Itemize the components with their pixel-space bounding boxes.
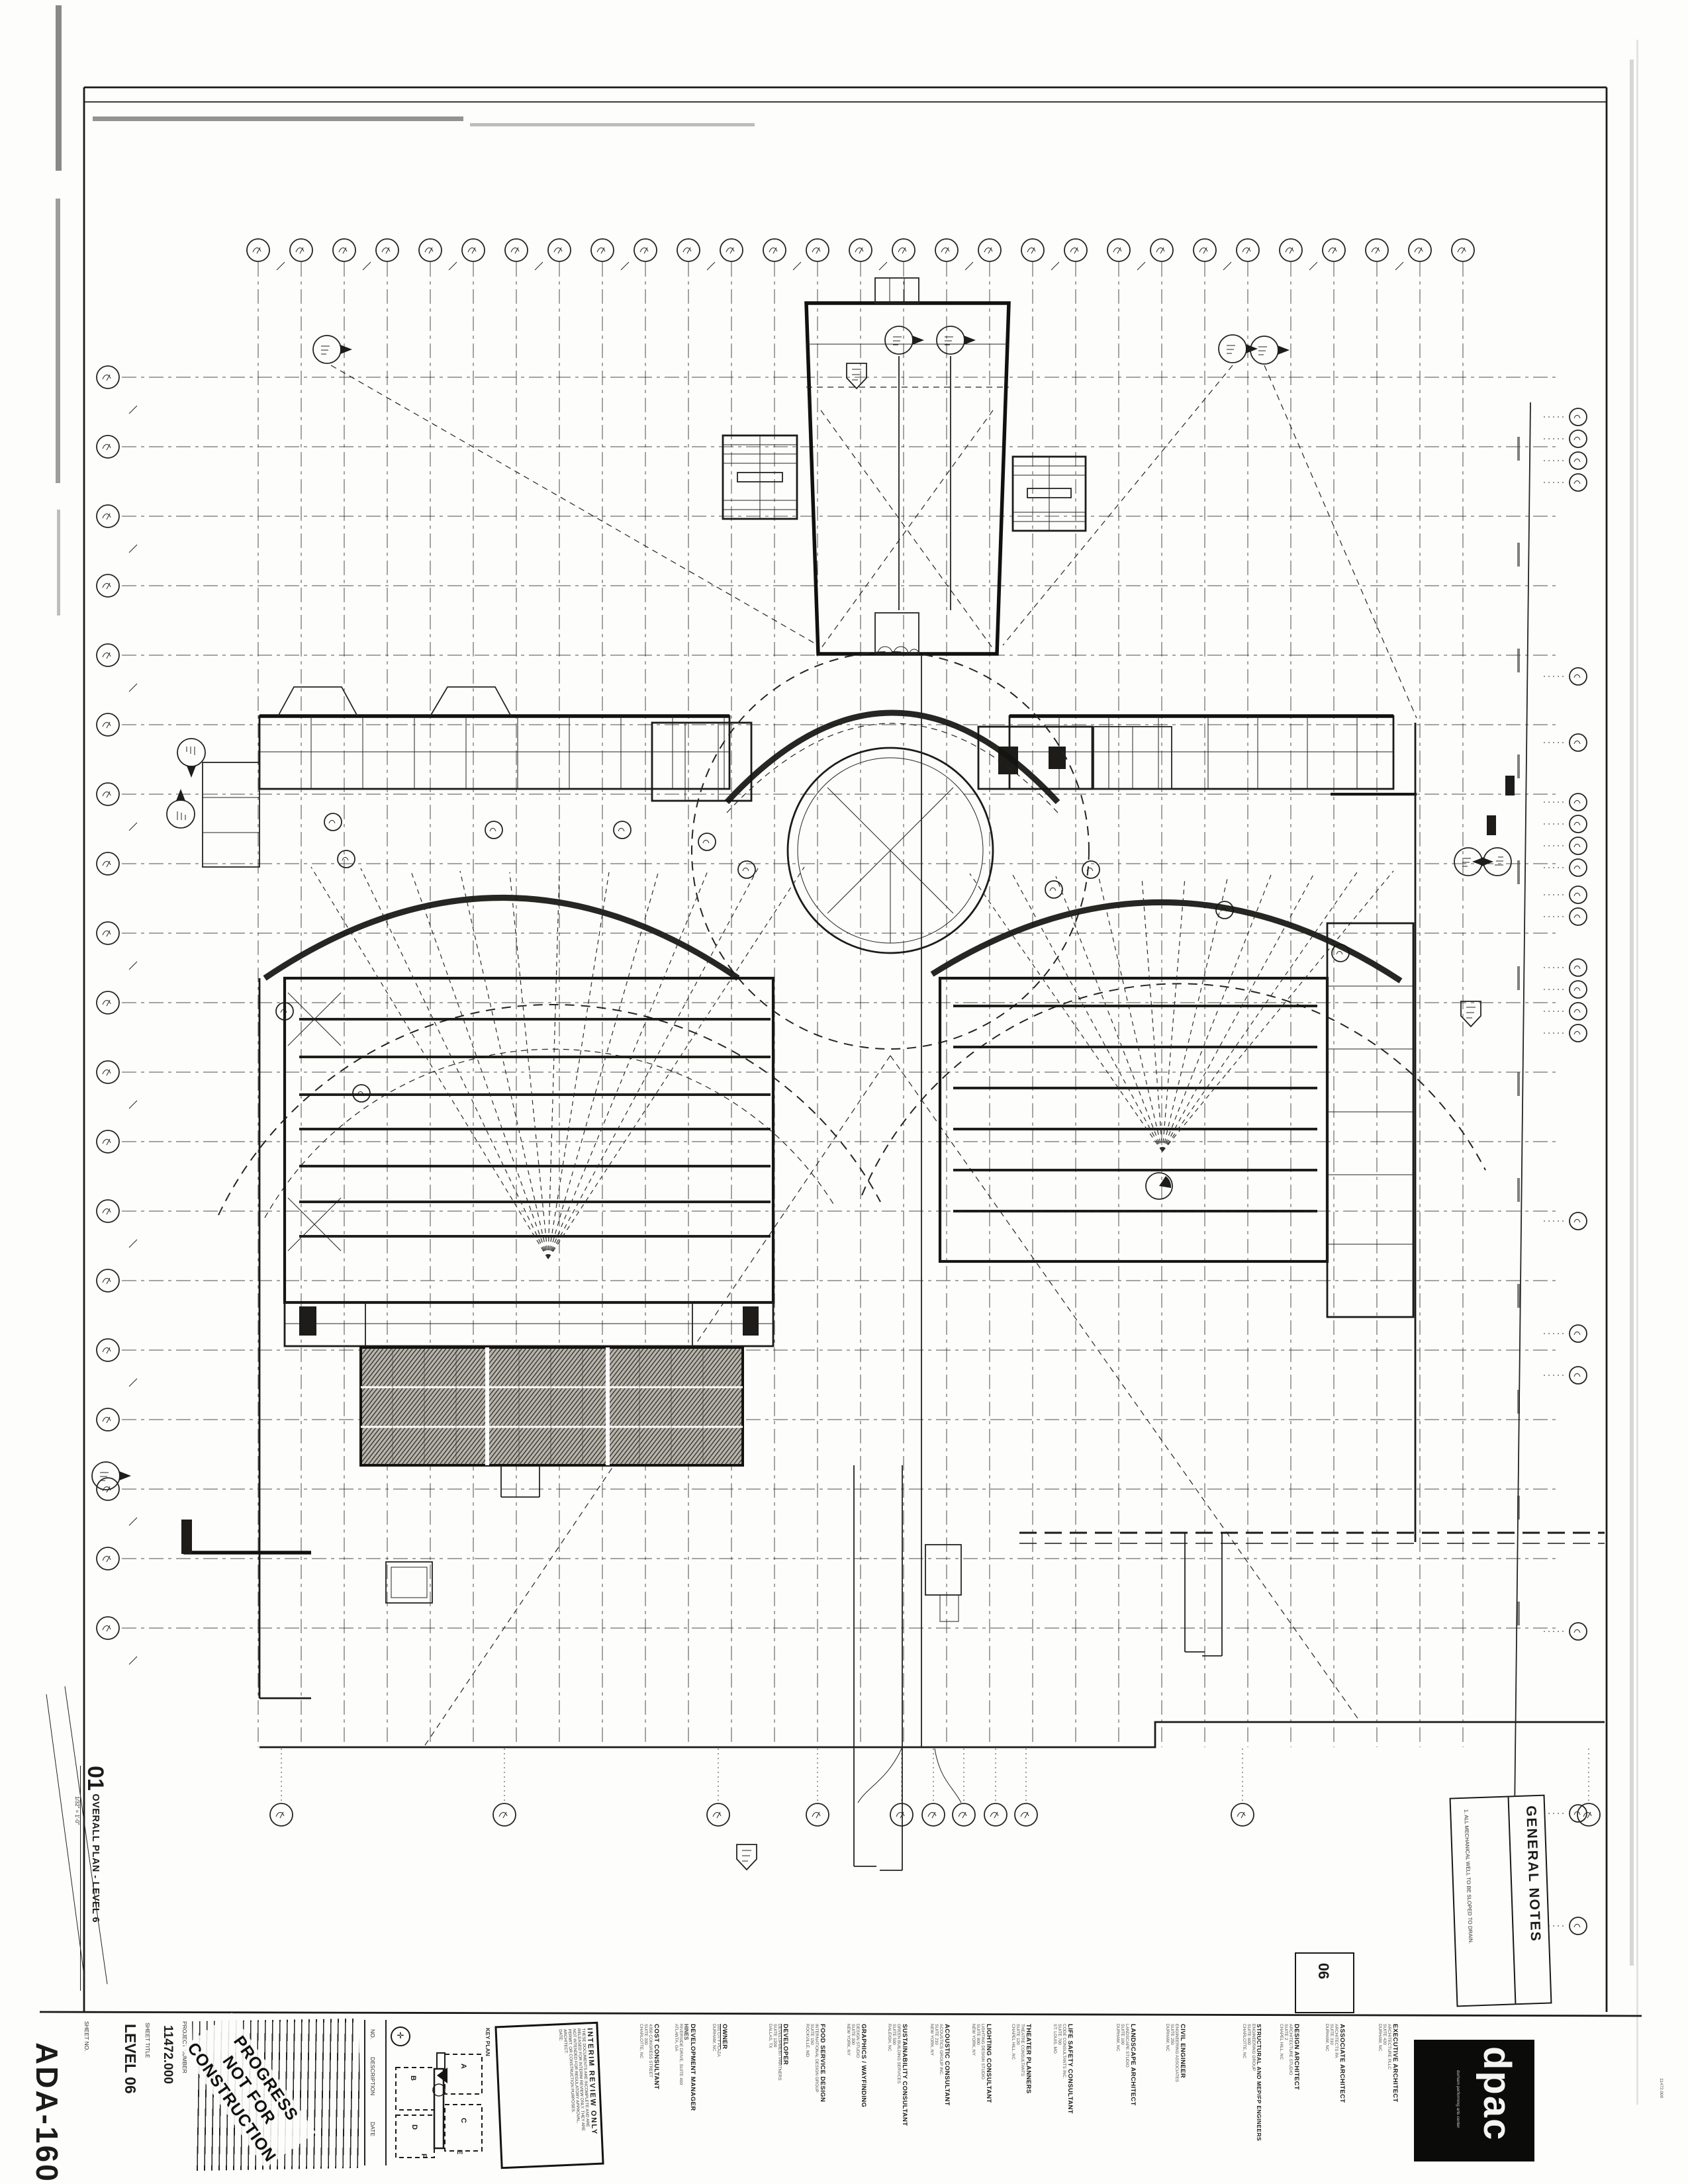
revision-hatch-area: PROGRESS NOT FOR CONSTRUCTION	[192, 2019, 361, 2171]
consultant-role: GRAPHICS / WAYFINDING	[860, 2024, 867, 2181]
drawing-title-line: 01 OVERALL PLAN - LEVEL 6	[80, 1766, 108, 1991]
key-plan-area-c: C	[459, 2118, 467, 2123]
consultant-line: CHARLOTTE, NC	[639, 2024, 643, 2181]
key-plan-area-a: A	[459, 2064, 467, 2069]
consultant-line: CODE CONSULTANTS INC.	[1062, 2024, 1066, 2181]
progress-stamp: PROGRESS NOT FOR CONSTRUCTION	[181, 2013, 316, 2168]
key-plan-graphic	[391, 2049, 491, 2171]
scanned-drawing-sheet: ADA-160 SHEET NO. LEVEL 06 SHEET TITLE 1…	[0, 0, 1688, 2184]
consultant-line: SUITE 100	[1120, 2024, 1125, 2181]
dpac-logo: dpac durham performing arts center	[1414, 2040, 1534, 2161]
consultant-sustainability: SUSTAINABILITY CONSULTANT GREEN BUILDING…	[874, 2024, 908, 2181]
sheet-border	[40, 87, 1642, 2016]
sheet-title-value: LEVEL 06	[121, 2024, 139, 2094]
consultant-role: DEVELOPER	[782, 2024, 789, 2181]
consultant-line: ROCKVILLE, MD	[805, 2024, 810, 2181]
grid-bubbles-bottom	[270, 1803, 1600, 1826]
consultant-role: COST CONSULTANT	[653, 2024, 660, 2181]
consultant-line: DURHAM, NC	[1325, 2024, 1329, 2181]
sheet-number: ADA-160	[29, 2042, 65, 2183]
key-plan-area-b: B	[409, 2075, 417, 2081]
drawing-title-text: OVERALL PLAN - LEVEL 6	[90, 1794, 101, 1923]
consultant-line: 101 CITY PLAZA	[716, 2024, 721, 2181]
consultant-role: STRUCTURAL AND MEP/FP ENGINEERS	[1256, 2024, 1262, 2181]
dpac-logo-text: dpac	[1477, 2046, 1516, 2141]
consultant-line: SUITE 800	[976, 2024, 980, 2181]
drawing-scale: 1/32" = 1'-0"	[74, 1766, 80, 1991]
consultant-line: THEATRE CONSULTANTS	[1020, 2024, 1025, 2181]
revision-col-description: DESCRIPTION	[369, 2057, 376, 2095]
consultant-line: DURHAM, NC	[1165, 2024, 1170, 2181]
consultant-line: DALLAS, TX	[768, 2024, 773, 2181]
consultant-owner: OWNER 101 CITY PLAZA DURHAM, NC	[694, 2024, 728, 2181]
consultant-role: ACOUSTIC CONSULTANT	[943, 2024, 951, 2181]
consultant-theater-planners: THEATER PLANNERS THEATRE CONSULTANTS SUI…	[998, 2024, 1032, 2181]
lower-plan-area	[46, 402, 1605, 1984]
consultant-line: SUITE 600	[1246, 2024, 1251, 2181]
consultant-line: GREEN BUILDING SERVICES	[896, 2024, 901, 2181]
floor-plan-drawing	[0, 0, 1688, 2184]
consultant-civil: CIVIL ENGINEER ENGINEERING ASSOCIATES SU…	[1152, 2024, 1186, 2181]
consultant-line: LIGHTING DESIGN STUDIO	[980, 2024, 985, 2181]
consultant-role: EXECUTIVE ARCHITECT	[1391, 2024, 1399, 2181]
consultant-role: THEATER PLANNERS	[1025, 2024, 1032, 2181]
sheet-number-label: SHEET NO.	[83, 2021, 90, 2052]
general-notes-box: GENERAL NOTES 1. ALL MECHANICAL WELL TO …	[1450, 1795, 1552, 2007]
dpac-logo-tagline: durham performing arts center	[1456, 2070, 1460, 2128]
consultant-line: SUITE 250	[1170, 2024, 1174, 2181]
plot-stamp: 11472.000	[1659, 2078, 1664, 2098]
general-notes-title: GENERAL NOTES	[1523, 1805, 1543, 1942]
consultant-food-service: FOOD SERVICE DESIGN INTERNATIONAL DESIGN…	[792, 2024, 826, 2181]
project-number-value: 11472.000	[160, 2025, 175, 2084]
consultant-line: CHAPEL HILL, NC	[1279, 2024, 1284, 2181]
consultant-line: CHAPEL HILL, NC	[1011, 2024, 1015, 2181]
consultant-line: ARCHITECTURE STUDIO	[1288, 2024, 1293, 2181]
area-tag-box: 06	[1295, 1952, 1354, 2013]
interim-review-stamp: INTERIM REVIEW ONLY THESE DOCUMENTS ARE …	[494, 2022, 604, 2169]
consultant-line: DURHAM, NC	[712, 2024, 716, 2181]
revision-table-rule	[364, 2020, 365, 2165]
key-plan-label: KEY PLAN	[485, 2028, 491, 2056]
key-plan: A B C D E F	[391, 2049, 491, 2171]
consultant-line: SUITE 120	[1015, 2024, 1020, 2181]
consultant-line: SUITE 300	[851, 2024, 855, 2181]
consultant-associate-architect: ASSOCIATE ARCHITECT ARCHITECTS PA SUITE …	[1311, 2024, 1346, 2181]
consultant-line: NEW YORK, NY	[929, 2024, 934, 2181]
consultant-role: FOOD SERVICE DESIGN	[819, 2024, 826, 2181]
consultant-line: ENGINEERING GROUP	[1251, 2024, 1256, 2181]
key-plan-area-e: E	[455, 2150, 463, 2154]
north-room-band-left	[259, 687, 729, 789]
consultant-lighting: LIGHTING CONSULTANT LIGHTING DESIGN STUD…	[958, 2024, 992, 2181]
consultant-line: SUITE 700	[1057, 2024, 1062, 2181]
consultant-role: SUSTAINABILITY CONSULTANT	[901, 2024, 908, 2181]
consultant-life-safety: LIFE SAFETY CONSULTANT CODE CONSULTANTS …	[1039, 2024, 1074, 2181]
consultant-line: CHARLOTTE, NC	[1242, 2024, 1246, 2181]
consultant-line: ARCHITECTURE PLLC	[1387, 2024, 1391, 2181]
consultant-line: SUITE 1200	[773, 2024, 777, 2181]
consultant-line: ST. LOUIS, MO	[1053, 2024, 1057, 2181]
consultant-line: ACOUSTICS GROUP INC.	[939, 2024, 943, 2181]
hall-right	[862, 776, 1515, 1317]
stair-core-left	[723, 435, 797, 519]
general-notes-divider	[1508, 1797, 1517, 2003]
consultant-line: DURHAM, NC	[1115, 2024, 1120, 2181]
consultant-role: LIFE SAFETY CONSULTANT	[1066, 2024, 1074, 2181]
consultant-firm: HINES	[683, 2024, 689, 2181]
consultant-line: SUITE 420	[1382, 2024, 1387, 2181]
grid-bubbles-mid	[276, 813, 1349, 1102]
consultant-developer: DEVELOPER DEVELOPMENT PARTNERS SUITE 120…	[755, 2024, 789, 2181]
consultant-role: DESIGN ARCHITECT	[1293, 2024, 1300, 2181]
consultant-role: CIVIL ENGINEER	[1179, 2024, 1186, 2181]
consultant-line: SUITE 500	[892, 2024, 896, 2181]
north-arrow-icon: ✛	[391, 2026, 410, 2046]
stair-core-right	[1013, 457, 1086, 531]
consultant-line: RIVERSIDE DRIVE, SUITE 400	[679, 2024, 683, 2181]
consultant-line: ATLANTA, GA	[674, 2024, 679, 2181]
consultant-role: LIGHTING CONSULTANT	[985, 2024, 992, 2181]
key-plan-area-d: D	[410, 2124, 418, 2130]
consultant-line: DEVELOPMENT PARTNERS	[777, 2024, 782, 2181]
general-note-1: 1. ALL MECHANICAL WELL TO BE SLOPED TO D…	[1463, 1809, 1474, 1944]
consultant-line: NEW YORK, NY	[846, 2024, 851, 2181]
consultant-line: INTERNATIONAL DESIGN GROUP	[814, 2024, 819, 2181]
consultant-structural-mep: STRUCTURAL AND MEP/FP ENGINEERS ENGINEER…	[1228, 2024, 1262, 2181]
sheet-title-label: SHEET TITLE	[144, 2023, 151, 2058]
consultant-line: SUITE 210	[934, 2024, 939, 2181]
consultant-graphics: GRAPHICS / WAYFINDING DESIGN STUDIO SUIT…	[833, 2024, 867, 2181]
consultant-role: OWNER	[721, 2024, 728, 2181]
consultant-landscape: LANDSCAPE ARCHITECT LANDSCAPE STUDIO SUI…	[1102, 2024, 1137, 2181]
drawing-title-block: 01 OVERALL PLAN - LEVEL 6 1/32" = 1'-0"	[74, 1766, 108, 1991]
consultant-line: LANDSCAPE STUDIO	[1125, 2024, 1129, 2181]
consultant-line: 4350 CONGRESS STREET	[648, 2024, 653, 2181]
consultant-acoustic: ACOUSTIC CONSULTANT ACOUSTICS GROUP INC.…	[916, 2024, 951, 2181]
hall-left	[218, 867, 880, 1698]
revision-table-rule	[385, 2020, 387, 2165]
consultant-executive-architect: EXECUTIVE ARCHITECT ARCHITECTURE PLLC SU…	[1364, 2024, 1399, 2181]
drawing-number: 01	[83, 1766, 108, 1791]
consultant-line: DESIGN STUDIO	[855, 2024, 860, 2181]
consultant-line: ENGINEERING ASSOCIATES	[1174, 2024, 1179, 2181]
consultant-role: ASSOCIATE ARCHITECT	[1338, 2024, 1346, 2181]
drum-hall	[692, 652, 1089, 1049]
consultant-design-architect: DESIGN ARCHITECT ARCHITECTURE STUDIO SUI…	[1266, 2024, 1300, 2181]
grid-bubbles-right	[1570, 408, 1587, 1934]
consultant-line: SUITE 310	[1329, 2024, 1334, 2181]
stage-house	[331, 278, 1417, 718]
area-tag-value: 06	[1315, 1963, 1332, 1979]
revision-col-date: DATE	[369, 2122, 376, 2136]
consultant-line: SUITE 200	[643, 2024, 648, 2181]
consultant-cost: COST CONSULTANT 4350 CONGRESS STREET SUI…	[626, 2024, 660, 2181]
consultant-line: DURHAM, NC	[1378, 2024, 1382, 2181]
grid-bubbles-left	[97, 366, 119, 1639]
revision-col-no: NO.	[369, 2029, 376, 2039]
hatched-roof-area	[361, 1347, 743, 1465]
consultant-line: NEW YORK, NY	[971, 2024, 976, 2181]
dimension-ticks	[129, 262, 1519, 1664]
consultant-line: SUITE 2	[1284, 2024, 1288, 2181]
consultant-line: SUITE 150	[810, 2024, 814, 2181]
consultant-development-manager: DEVELOPMENT MANAGER HINES RIVERSIDE DRIV…	[662, 2024, 696, 2181]
consultant-line: RALEIGH, NC	[887, 2024, 892, 2181]
consultant-line: ARCHITECTS PA	[1334, 2024, 1338, 2181]
consultant-role: LANDSCAPE ARCHITECT	[1129, 2024, 1137, 2181]
reference-markers	[92, 326, 1511, 1870]
grid-bubbles-top	[247, 239, 1474, 261]
key-plan-area-f: F	[420, 2154, 428, 2158]
